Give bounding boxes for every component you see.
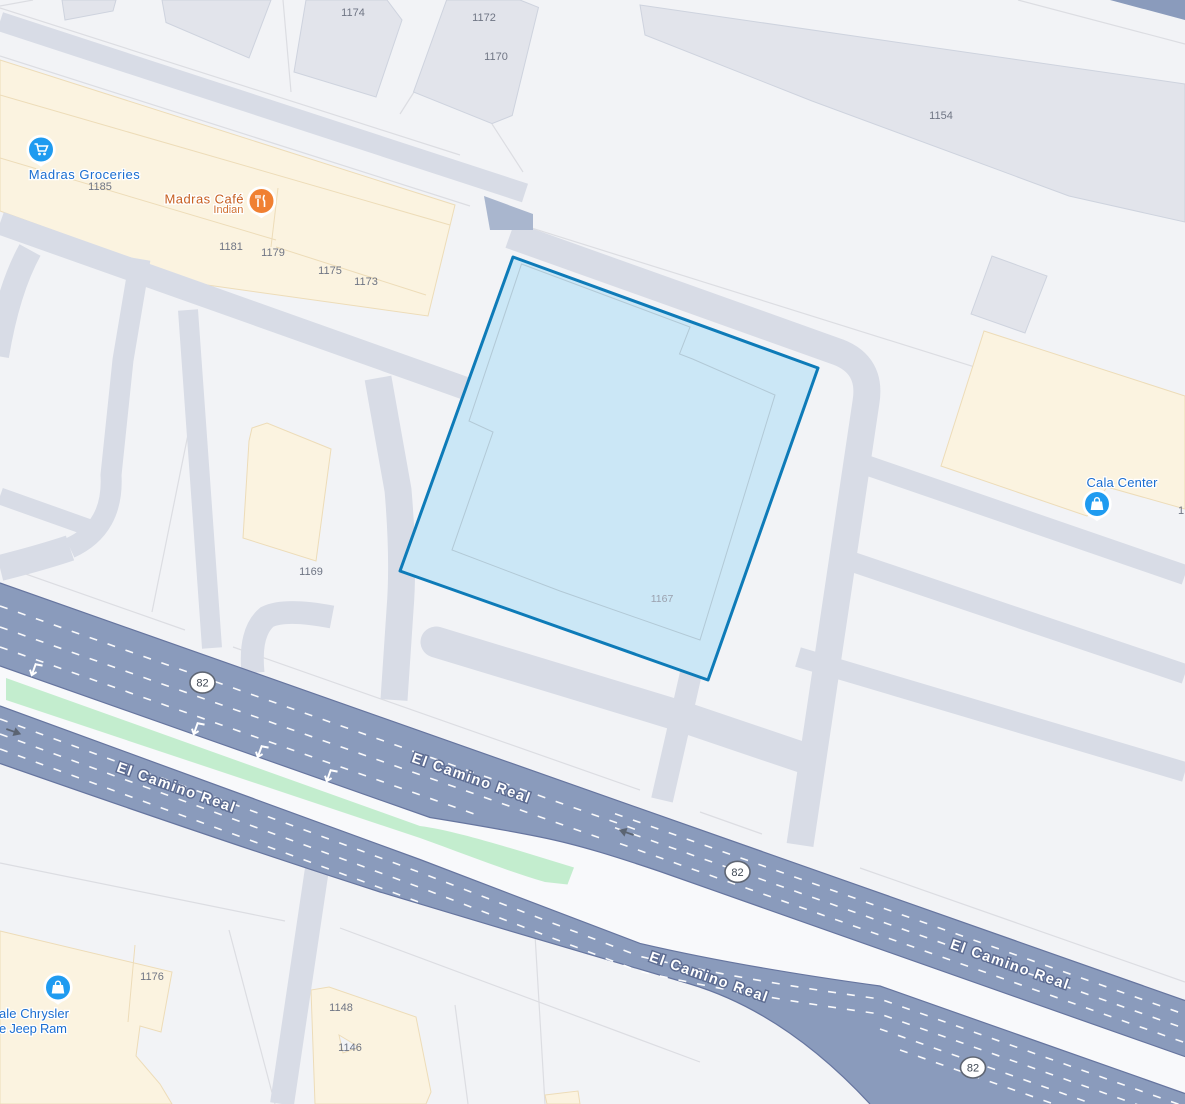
svg-text:1176: 1176: [140, 971, 164, 983]
svg-text:1148: 1148: [329, 1002, 353, 1014]
svg-text:1173: 1173: [354, 276, 378, 288]
svg-text:Madras Groceries: Madras Groceries: [29, 167, 141, 182]
svg-text:1185: 1185: [88, 181, 112, 193]
svg-text:1169: 1169: [299, 566, 323, 578]
svg-text:1174: 1174: [341, 7, 365, 19]
svg-text:ale Chrysler: ale Chrysler: [0, 1006, 70, 1021]
svg-text:1167: 1167: [651, 593, 674, 605]
svg-text:82: 82: [967, 1063, 979, 1075]
svg-text:Cala Center: Cala Center: [1087, 475, 1159, 490]
svg-text:82: 82: [196, 678, 208, 690]
svg-text:1154: 1154: [929, 110, 953, 122]
svg-text:1179: 1179: [261, 247, 285, 259]
svg-text:Indian: Indian: [213, 204, 243, 216]
svg-text:1175: 1175: [318, 265, 342, 277]
svg-text:1170: 1170: [484, 51, 508, 63]
svg-text:82: 82: [731, 867, 743, 879]
svg-text:e Jeep Ram: e Jeep Ram: [0, 1021, 67, 1036]
svg-text:1181: 1181: [219, 241, 243, 253]
svg-text:1172: 1172: [472, 12, 496, 24]
svg-text:1: 1: [1178, 505, 1184, 517]
svg-text:1146: 1146: [338, 1042, 362, 1054]
